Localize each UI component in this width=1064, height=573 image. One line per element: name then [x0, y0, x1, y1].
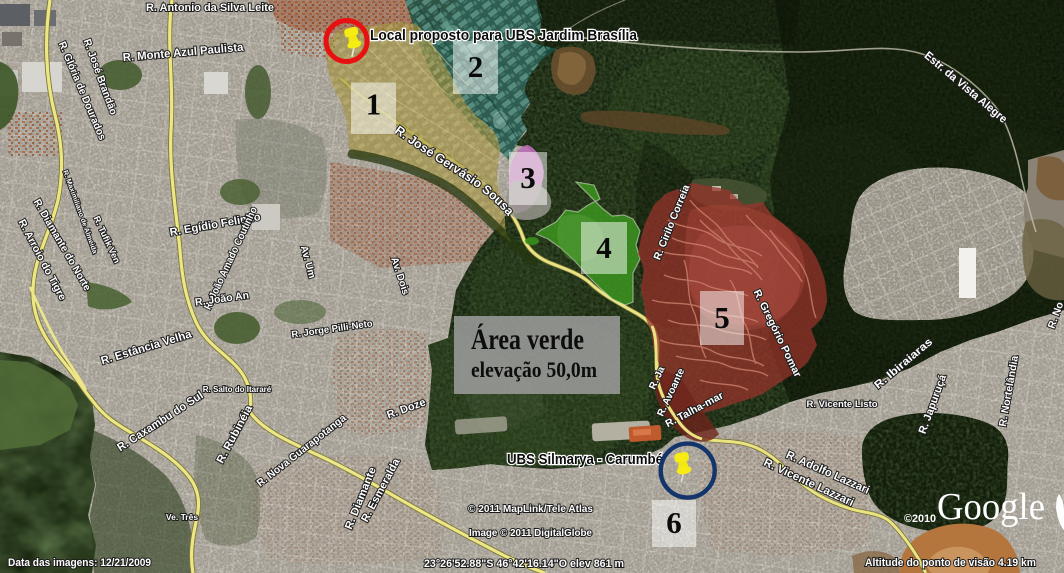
svg-text:4: 4 — [596, 230, 612, 265]
svg-text:Google: Google — [937, 486, 1045, 528]
svg-text:elevação 50,0m: elevação 50,0m — [471, 357, 597, 382]
svg-text:Ve. Três: Ve. Três — [166, 512, 198, 522]
svg-text:Área verde: Área verde — [471, 323, 584, 356]
svg-text:Data das imagens: 12/21/2009: Data das imagens: 12/21/2009 — [8, 557, 151, 569]
svg-text:Image © 2011 DigitalGlobe: Image © 2011 DigitalGlobe — [469, 527, 592, 539]
svg-text:©2010: ©2010 — [904, 513, 936, 525]
svg-text:R. Vicente Listo: R. Vicente Listo — [806, 399, 877, 410]
svg-text:R. Antonio da Silva Leite: R. Antonio da Silva Leite — [146, 2, 274, 14]
svg-text:3: 3 — [520, 160, 536, 195]
svg-text:UBS Silmarya - Carumbé: UBS Silmarya - Carumbé — [507, 452, 663, 468]
svg-text:R. Salto do Itararé: R. Salto do Itararé — [203, 385, 272, 394]
svg-text:5: 5 — [714, 300, 730, 335]
svg-text:© 2011 MapLink/Tele Atlas: © 2011 MapLink/Tele Atlas — [468, 503, 593, 515]
svg-text:Altitude do ponto de visão: Altitude do ponto de visão 4.19 km — [865, 557, 1036, 569]
svg-text:Local proposto para UBS Jardim: Local proposto para UBS Jardim Brasília — [370, 28, 638, 44]
svg-text:23°26'52.88"S 46°42'16.14"O: 23°26'52.88"S 46°42'16.14"O elev 861 m — [424, 558, 624, 570]
svg-text:6: 6 — [666, 505, 682, 540]
svg-text:2: 2 — [468, 49, 484, 84]
svg-text:1: 1 — [366, 87, 382, 122]
